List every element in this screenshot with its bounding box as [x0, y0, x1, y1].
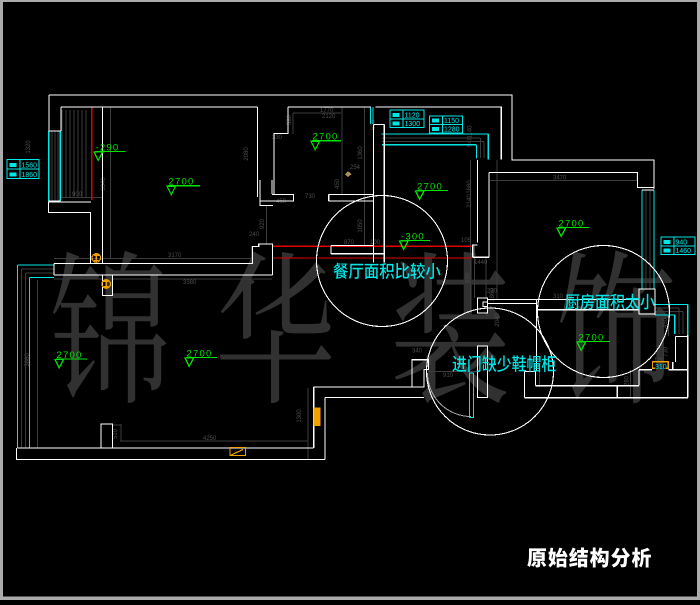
- svg-text:1360: 1360: [358, 146, 364, 160]
- svg-text:254: 254: [350, 165, 361, 171]
- svg-text:900: 900: [72, 192, 83, 198]
- svg-text:450: 450: [335, 178, 341, 189]
- svg-text:1460: 1460: [676, 248, 692, 255]
- svg-text:2040: 2040: [495, 313, 501, 327]
- svg-text:310: 310: [655, 364, 667, 371]
- svg-text:1120: 1120: [405, 112, 420, 119]
- svg-text:280: 280: [625, 375, 631, 386]
- svg-text:4250: 4250: [203, 436, 217, 442]
- svg-text:2120: 2120: [322, 114, 336, 120]
- svg-text:3170: 3170: [168, 253, 182, 259]
- svg-text:3470: 3470: [553, 176, 567, 182]
- svg-text:340: 340: [412, 349, 423, 355]
- svg-text:450: 450: [276, 199, 287, 205]
- svg-text:1440: 1440: [474, 260, 488, 266]
- svg-text:1300: 1300: [405, 121, 421, 128]
- svg-text:940: 940: [676, 239, 688, 246]
- svg-text:690: 690: [466, 272, 472, 283]
- svg-text:105: 105: [461, 238, 472, 244]
- svg-text:730: 730: [664, 346, 670, 357]
- svg-text:2080: 2080: [244, 147, 250, 161]
- svg-text:1860: 1860: [22, 172, 38, 179]
- svg-text:1140: 1140: [468, 125, 474, 139]
- svg-text:1150: 1150: [444, 118, 459, 125]
- svg-text:510: 510: [113, 428, 119, 439]
- svg-text:2140: 2140: [467, 194, 473, 208]
- svg-text:1280: 1280: [444, 127, 460, 134]
- svg-text:240: 240: [249, 232, 260, 238]
- svg-text:1300: 1300: [297, 409, 303, 423]
- svg-text:3380: 3380: [183, 280, 197, 286]
- svg-text:1050: 1050: [358, 219, 364, 233]
- svg-text:1320: 1320: [26, 140, 32, 154]
- svg-text:730: 730: [305, 194, 316, 200]
- svg-text:910: 910: [443, 373, 454, 379]
- svg-text:920: 920: [260, 218, 266, 229]
- svg-text:1680: 1680: [467, 180, 473, 194]
- svg-text:1560: 1560: [22, 163, 38, 170]
